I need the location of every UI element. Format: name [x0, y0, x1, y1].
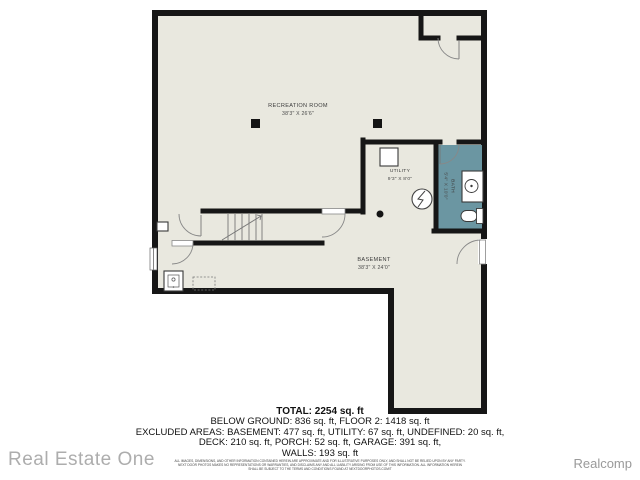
disclaimer: ALL IMAGES, DIMENSIONS, AND OTHER INFORM…	[110, 459, 530, 471]
electrical-meter-icon	[412, 189, 432, 209]
utility-room-label: UTILITY	[390, 168, 411, 174]
utility-room-dims: 9'3" X 8'0"	[388, 176, 412, 182]
realestate-one-watermark: Real Estate One	[8, 449, 155, 471]
bath-room-label: BATH	[450, 179, 456, 193]
basement-dims: 38'3" X 24'0"	[358, 265, 390, 271]
window-left-wall	[150, 248, 157, 270]
bath-vanity	[462, 171, 483, 202]
realcomp-watermark: Realcomp	[573, 456, 632, 471]
support-post	[251, 119, 260, 128]
support-post	[377, 211, 384, 218]
furnace	[380, 148, 398, 166]
recreation-room-label: RECREATION ROOM	[268, 103, 328, 109]
laundry-tub	[164, 271, 183, 291]
electrical-panel	[157, 222, 168, 231]
floor-plan-page: RECREATION ROOM 38'3" X 26'6" UTILITY 9'…	[0, 0, 640, 480]
disclaimer-line3: SHALL BE SUBJECT TO THE TERMS AND CONDIT…	[110, 467, 530, 471]
basement-label: BASEMENT	[357, 257, 390, 263]
support-post	[373, 119, 382, 128]
recreation-room-dims: 38'3" X 26'6"	[282, 111, 314, 117]
toilet	[461, 209, 483, 224]
bath-room-dims: 5'4" X 10'0"	[443, 172, 449, 199]
staircase	[222, 214, 262, 241]
